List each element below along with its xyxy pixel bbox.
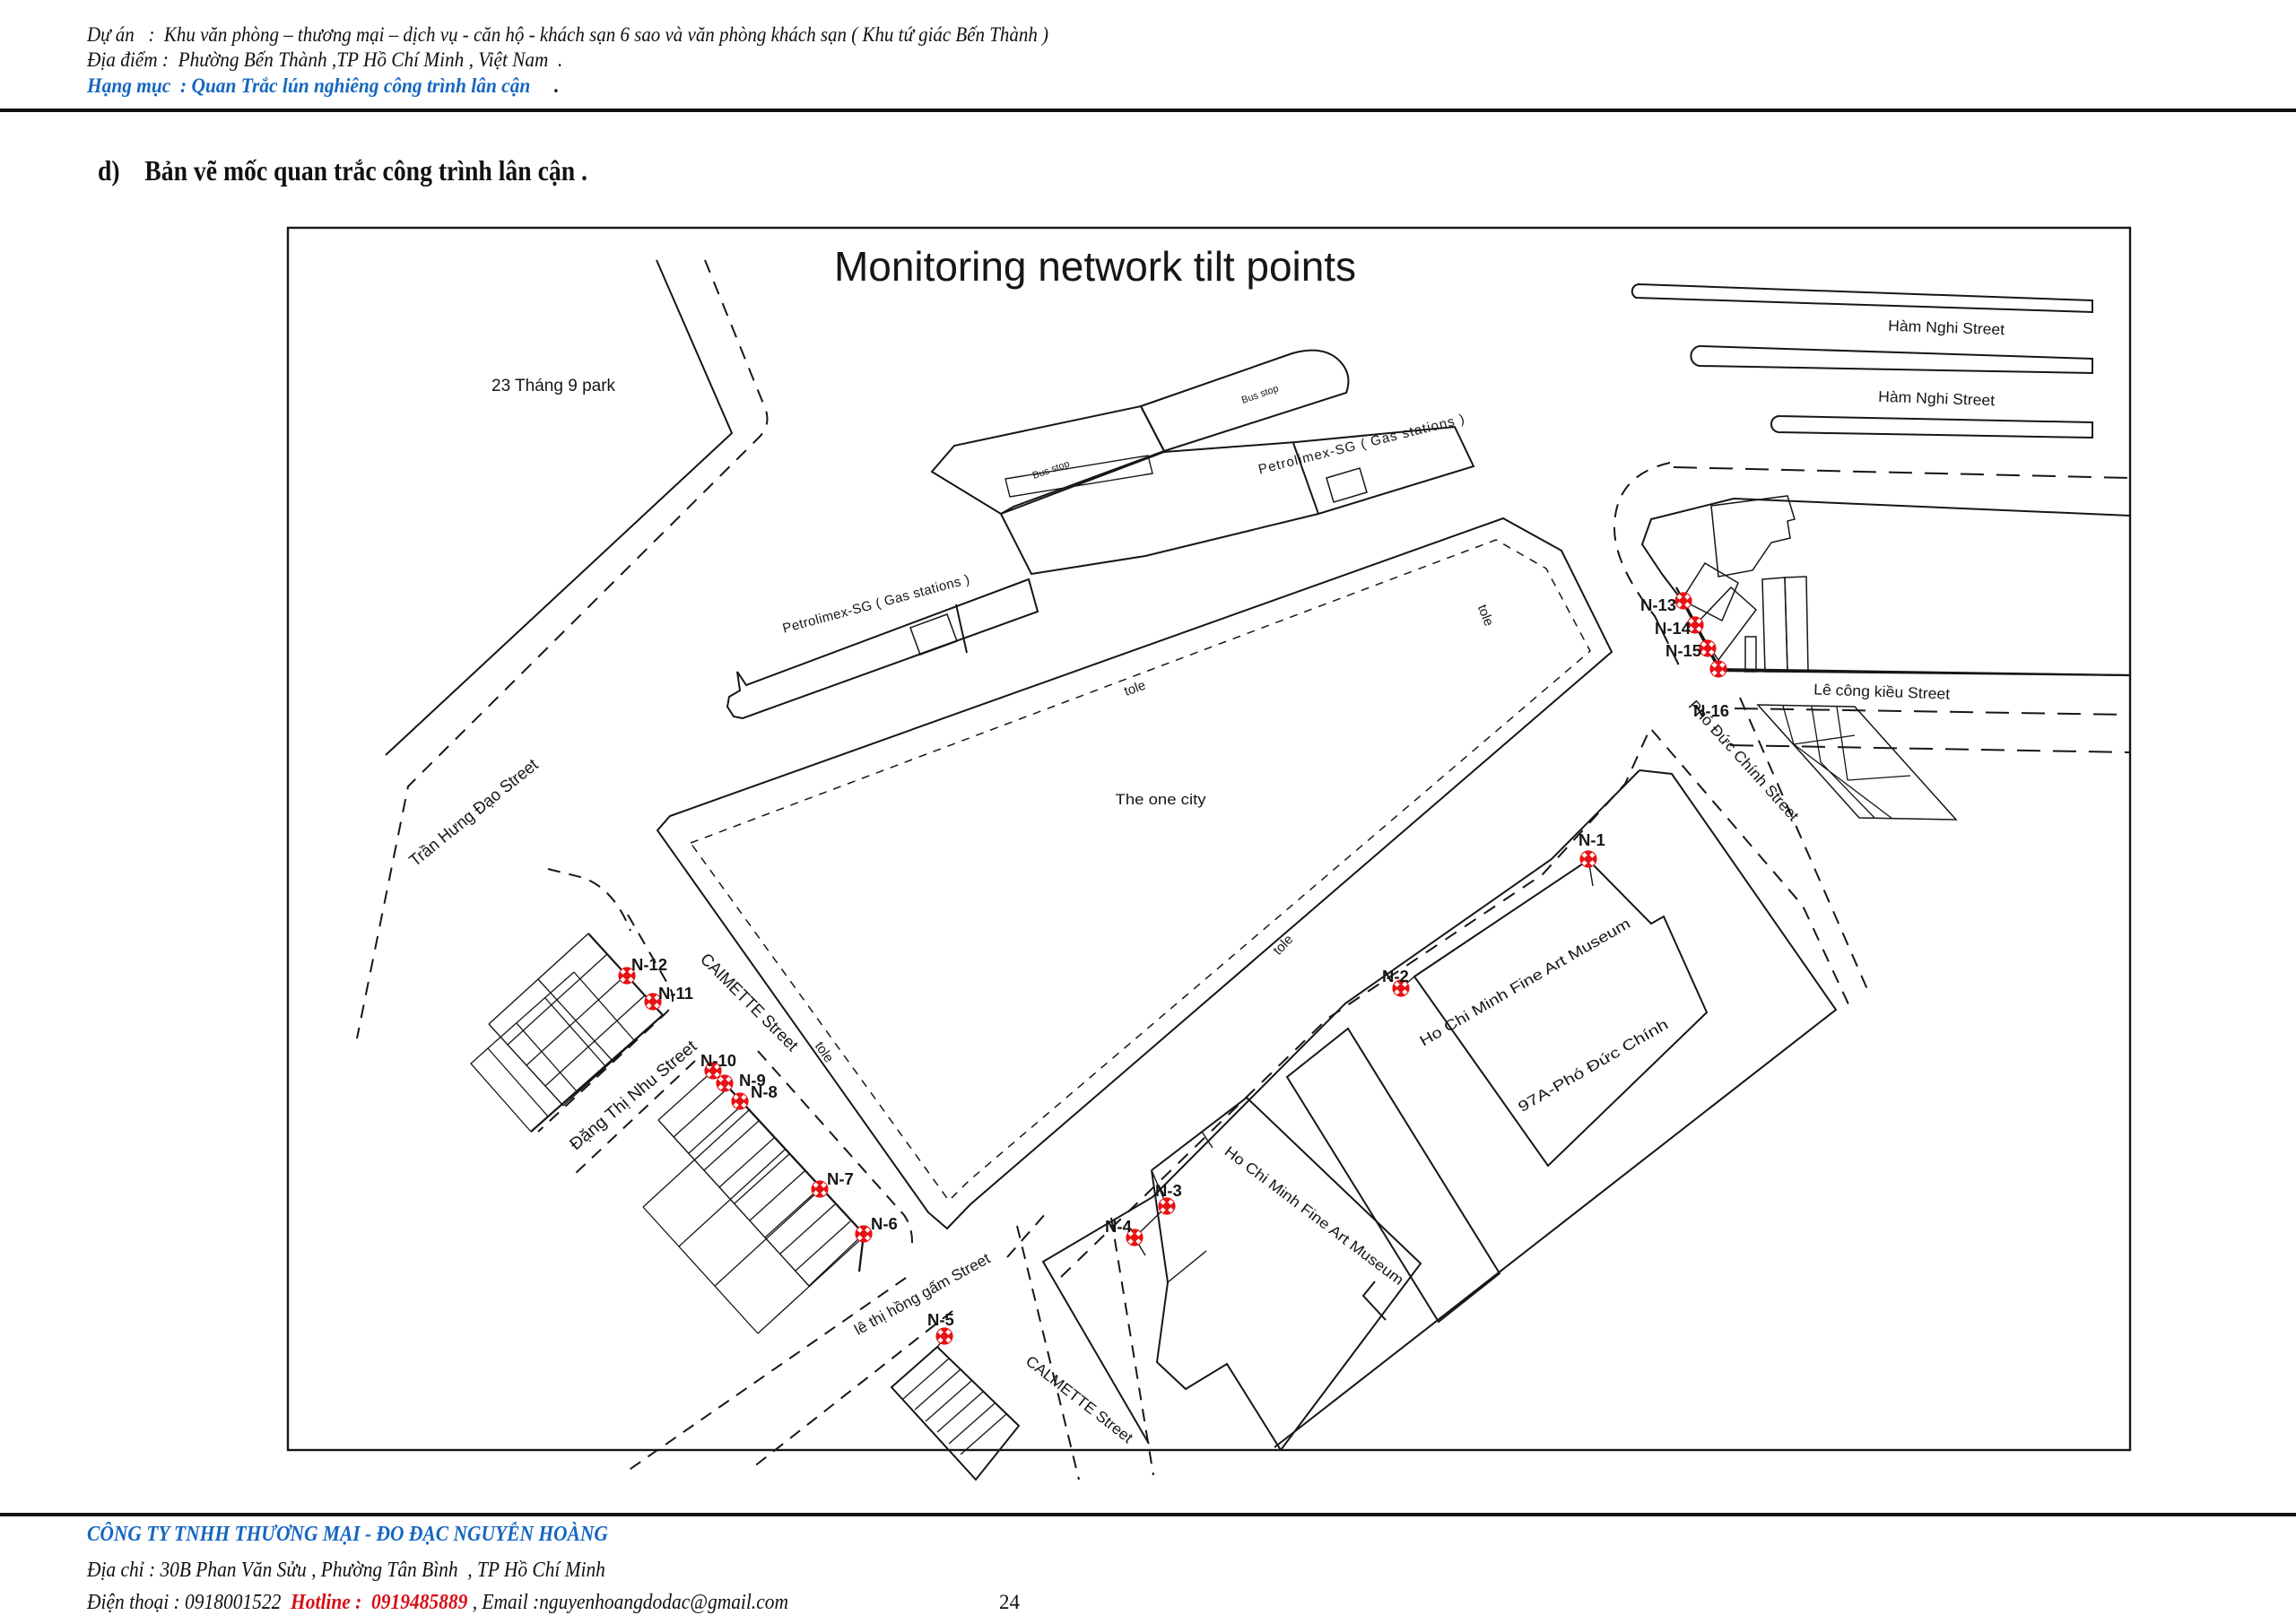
svg-text:lê thị hồng gấm Street: lê thị hồng gấm Street xyxy=(851,1250,993,1339)
svg-text:CAIMETTE Street: CAIMETTE Street xyxy=(696,950,802,1055)
svg-text:Petrolimex-SG ( Gas stations ): Petrolimex-SG ( Gas stations ) xyxy=(781,572,971,637)
svg-text:97A-Phó Đức Chính: 97A-Phó Đức Chính xyxy=(1516,1016,1672,1116)
svg-text:Petrolimex-SG ( Gas stations ): Petrolimex-SG ( Gas stations ) xyxy=(1257,412,1465,478)
svg-text:N-3: N-3 xyxy=(1155,1181,1182,1200)
svg-text:N-14: N-14 xyxy=(1655,619,1692,638)
svg-text:tole: tole xyxy=(1122,678,1148,699)
svg-text:N-10: N-10 xyxy=(700,1051,736,1070)
svg-text:Ho Chi Minh Fine Art Museum: Ho Chi Minh Fine Art Museum xyxy=(1222,1143,1406,1289)
svg-text:Lê công kiều Street: Lê công kiều Street xyxy=(1813,681,1951,702)
svg-text:Hàm Nghi Street: Hàm Nghi Street xyxy=(1888,317,2005,339)
svg-text:N-7: N-7 xyxy=(827,1169,854,1188)
svg-text:N-16: N-16 xyxy=(1693,701,1729,720)
svg-text:Bus stop: Bus stop xyxy=(1031,459,1071,482)
svg-text:tole: tole xyxy=(812,1039,837,1066)
svg-text:N-15: N-15 xyxy=(1665,641,1701,660)
svg-text:Monitoring network tilt points: Monitoring network tilt points xyxy=(834,243,1356,290)
svg-text:N-4: N-4 xyxy=(1105,1217,1133,1236)
svg-text:CALMETTE Street: CALMETTE Street xyxy=(1022,1352,1136,1446)
svg-text:Bus stop: Bus stop xyxy=(1240,384,1280,406)
svg-text:Trần Hưng Đạo Street: Trần Hưng Đạo Street xyxy=(406,755,543,871)
svg-text:N-6: N-6 xyxy=(871,1214,898,1233)
svg-text:N-5: N-5 xyxy=(927,1310,954,1329)
svg-text:N-2: N-2 xyxy=(1382,967,1409,986)
svg-text:Hàm Nghi Street: Hàm Nghi Street xyxy=(1878,388,1996,410)
svg-text:N-1: N-1 xyxy=(1578,830,1605,849)
svg-text:Đặng Thị Nhu Street: Đặng Thị Nhu Street xyxy=(567,1037,701,1154)
svg-text:N-9: N-9 xyxy=(739,1071,766,1090)
svg-text:tole: tole xyxy=(1270,932,1296,958)
svg-text:The one city: The one city xyxy=(1116,791,1207,808)
svg-text:Ho Chi Minh Fine Art Museum: Ho Chi Minh Fine Art Museum xyxy=(1417,916,1633,1050)
svg-text:N-13: N-13 xyxy=(1640,595,1676,614)
svg-text:23 Tháng 9 park: 23 Tháng 9 park xyxy=(491,377,616,395)
svg-text:N-12: N-12 xyxy=(631,955,667,974)
svg-text:tole: tole xyxy=(1474,603,1497,629)
svg-text:N-11: N-11 xyxy=(658,984,693,1003)
